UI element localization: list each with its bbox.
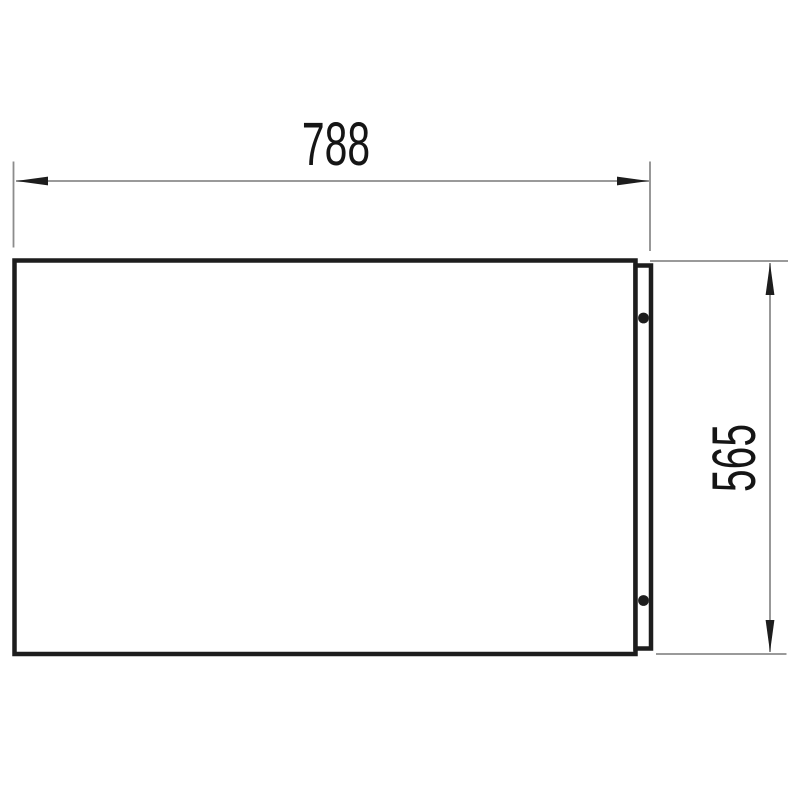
screw-hole-top	[638, 313, 649, 324]
technical-drawing-canvas: 788 565	[0, 0, 800, 800]
screw-hole-bottom	[638, 595, 649, 606]
arrowhead-left-icon	[16, 177, 48, 186]
arrowhead-up-icon	[766, 263, 775, 295]
panel-outline	[15, 261, 636, 655]
arrowhead-down-icon	[766, 620, 775, 652]
arrowhead-right-icon	[617, 177, 649, 186]
height-dimension-label: 565	[702, 391, 766, 525]
width-dimension-label: 788	[269, 112, 403, 176]
